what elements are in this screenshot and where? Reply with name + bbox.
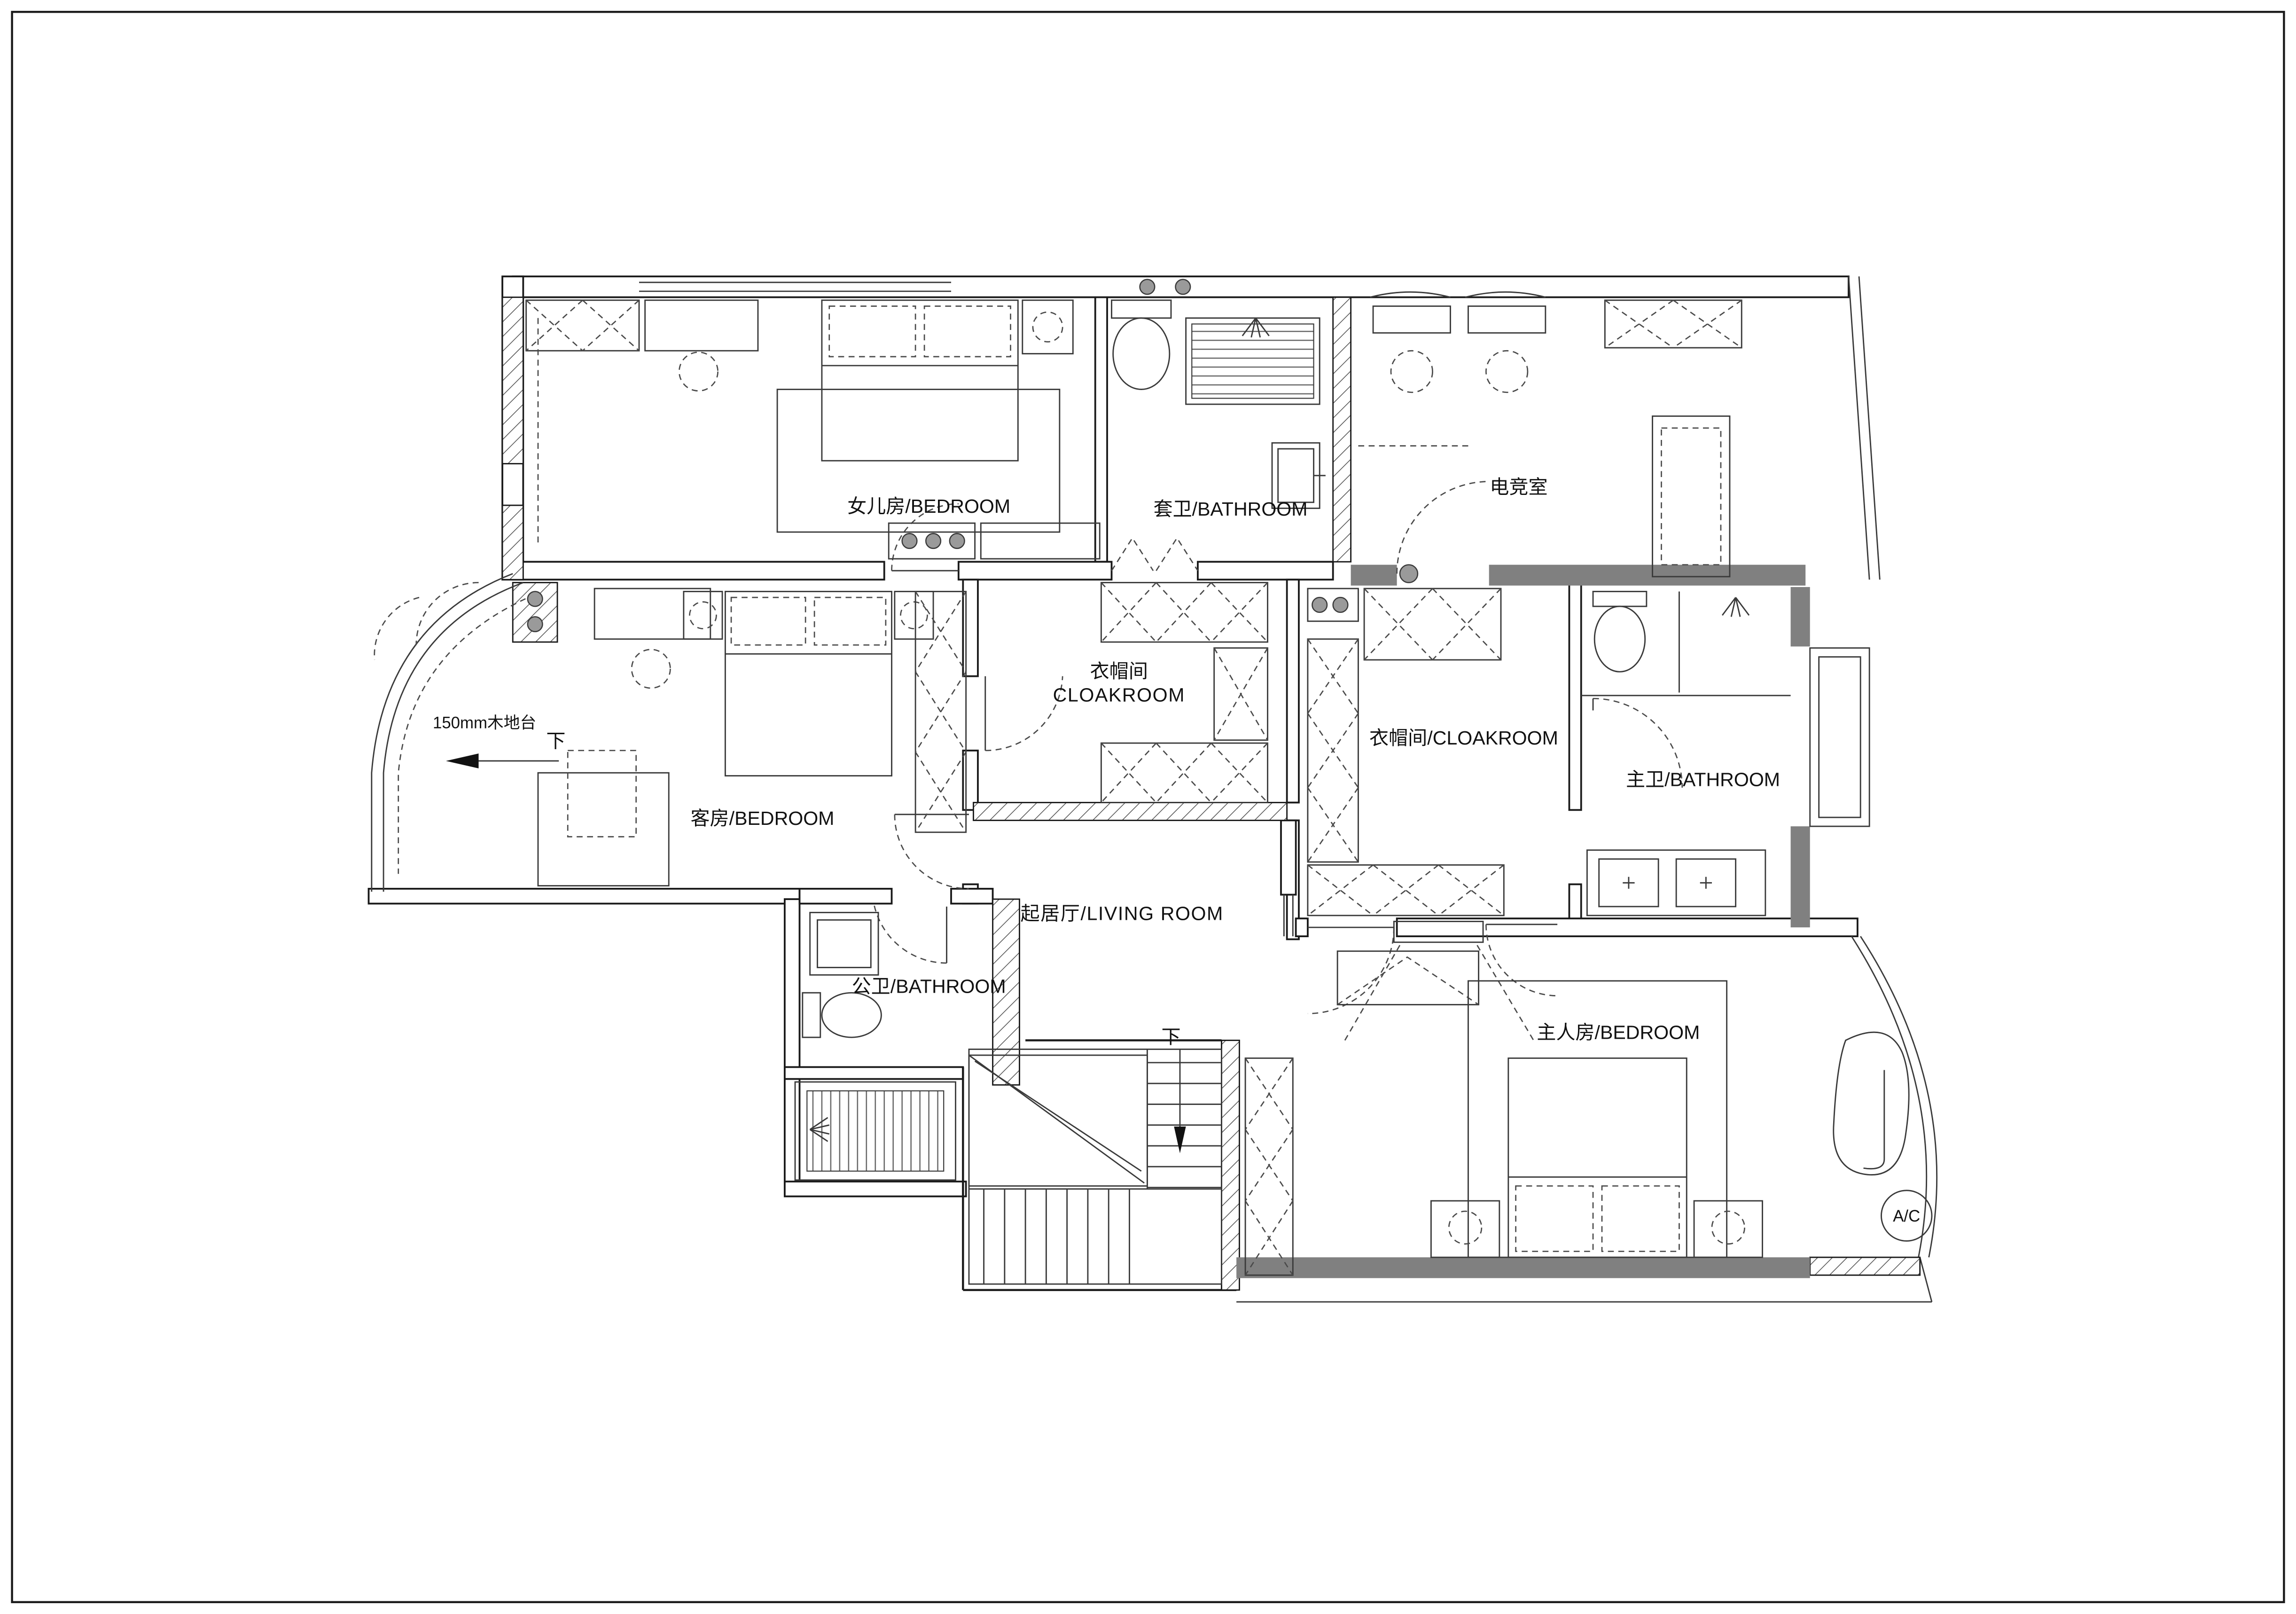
sink-cabinet [810,913,878,975]
room-label-guest-bedroom: 客房/BEDROOM [690,807,834,829]
room-label-suite-bathroom: 套卫/BATHROOM [1153,498,1307,520]
lamp [1033,312,1062,342]
gaming-chair [1486,351,1528,392]
pillow [829,306,915,357]
furniture-guest-bedroom [528,588,966,885]
room-label-cloakroom-center-cn: 衣帽间 [1090,660,1148,682]
pillow [1602,1186,1679,1251]
wardrobe-bottom [1308,865,1504,916]
bifold-door [1112,538,1198,571]
tv-cone [1345,945,1534,1040]
shower-floor [807,1091,944,1171]
furniture-public-bathroom [795,913,956,1180]
seat [538,773,669,885]
room-label-daughter-bedroom: 女儿房/BEDROOM [847,495,1010,517]
shower-floor [1192,324,1313,398]
chair [632,650,670,688]
bed [1508,1058,1687,1257]
bed [822,300,1018,461]
room-label-cloakroom-right: 衣帽间/CLOAKROOM [1369,727,1558,749]
room-label-esports-room: 电竞室 [1490,476,1547,498]
drawing-sheet: 女儿房/BEDROOM 套卫/BATHROOM 电竞室 衣帽间 CLOAKROO… [0,0,2296,1614]
stair-side-wardrobe [1245,1058,1293,1275]
wardrobe-top [1101,583,1267,642]
pillow [924,306,1010,357]
furniture-cloakroom-right [1308,588,1504,916]
lamp [1449,1211,1482,1244]
balcony-door-swing-2 [375,597,419,660]
stair-direction-arrow [1174,1127,1186,1153]
cabinet [981,523,1100,559]
gaming-chair [1391,351,1433,392]
furniture-suite-bathroom [1112,279,1326,508]
lamp [690,602,717,629]
hatched-walls [502,297,1920,1290]
down-arrow-head [446,753,479,768]
wardrobe [526,300,639,351]
faucets [1623,877,1712,889]
sink [1278,449,1314,502]
door-mat [1337,951,1478,1005]
seat-cushion [568,751,636,837]
toilet-bowl [822,993,881,1037]
platform-note: 150mm木地台 [433,713,536,732]
bed [725,592,891,776]
room-label-living-room: 起居厅/LIVING ROOM [1020,902,1223,924]
down-label-stairs: 下 [1161,1026,1180,1048]
room-label-master-bathroom: 主卫/BATHROOM [1626,769,1780,791]
toilet-bowl [1594,606,1645,672]
furniture-master-bedroom [1345,921,1932,1257]
pillow [1516,1186,1593,1251]
pillow [814,597,886,645]
wardrobe-top [1364,588,1501,660]
windows [372,282,1869,892]
lamp [901,602,928,629]
room-label-cloakroom-center-en: CLOAKROOM [1053,684,1185,705]
pillow [731,597,805,645]
furniture-master-bathroom [1587,592,1765,916]
nightstand [1694,1201,1762,1257]
lamp [1712,1211,1745,1244]
stair-treads-bottom [969,1189,1222,1284]
toilet-bowl [1113,318,1170,390]
toilet-tank [1593,592,1647,607]
sink [817,920,871,967]
gaming-desk [1468,306,1545,333]
toilet-tank [803,993,820,1037]
furniture-esports-room [1370,292,1742,582]
ac-label: A/C [1893,1207,1920,1225]
chair [679,352,718,391]
furniture-daughter-bedroom [526,300,1100,559]
nightstand [1023,300,1073,354]
nightstand [1431,1201,1499,1257]
floor-plan-canvas: 女儿房/BEDROOM 套卫/BATHROOM 电竞室 衣帽间 CLOAKROO… [0,0,2296,1614]
wardrobe-bottom [1101,743,1267,802]
balcony-outer-arc [372,574,513,892]
daybed [1653,416,1730,577]
gaming-desk [1373,306,1450,333]
desk [594,588,711,639]
toilet-tank [1112,300,1171,318]
wardrobe [1605,300,1742,348]
stair-treads-right [1147,1063,1221,1188]
down-label-guest: 下 [546,730,565,752]
chaise-lounge [1834,1032,1909,1175]
desk [645,300,758,351]
shower-head-icon [1722,597,1749,617]
room-label-master-bedroom: 主人房/BEDROOM [1537,1021,1700,1043]
chaise-inner [1864,1070,1884,1169]
room-label-public-bathroom: 公卫/BATHROOM [852,975,1006,997]
balcony-door-swing [416,583,479,645]
